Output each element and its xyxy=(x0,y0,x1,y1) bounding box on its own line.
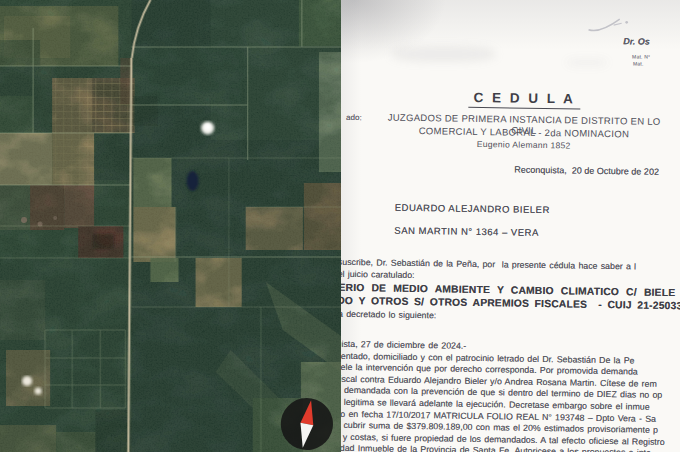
letterhead-doctor-name: Dr. Os xyxy=(623,37,650,46)
intro-line: el juicio caratulado: xyxy=(341,270,415,280)
addressee-address: SAN MARTIN N° 1364 – VERA xyxy=(394,226,539,238)
letterhead-mat-line2: Mat. xyxy=(633,61,644,66)
cloud-spot xyxy=(201,122,214,135)
composite-image: Dr. Os Mat. N° Mat. C E D U L A ado: JUZ… xyxy=(0,0,680,452)
legal-document-panel: Dr. Os Mat. N° Mat. C E D U L A ado: JUZ… xyxy=(341,0,680,452)
letterhead-mat-line1: Mat. N° xyxy=(632,54,650,59)
satellite-map-panel xyxy=(0,0,341,452)
dateline: Reconquista, 20 de Octubre de 202 xyxy=(514,166,659,177)
pen-mark xyxy=(585,12,635,39)
satellite-map xyxy=(0,0,341,452)
document-title: C E D U L A xyxy=(468,90,580,110)
document-content: Dr. Os Mat. N° Mat. C E D U L A ado: JUZ… xyxy=(341,0,680,452)
addressed-to-label: ado: xyxy=(346,114,362,122)
addressee-name: EDUARDO ALEJANDRO BIELER xyxy=(395,203,550,215)
court-address: Eugenio Alemann 1852 xyxy=(374,137,674,152)
document-body-line: uista, 27 de diciembre de 2024.- xyxy=(341,340,466,351)
decree-intro-line: a decretado lo siguiente: xyxy=(341,310,436,320)
pond-spot xyxy=(187,171,199,191)
